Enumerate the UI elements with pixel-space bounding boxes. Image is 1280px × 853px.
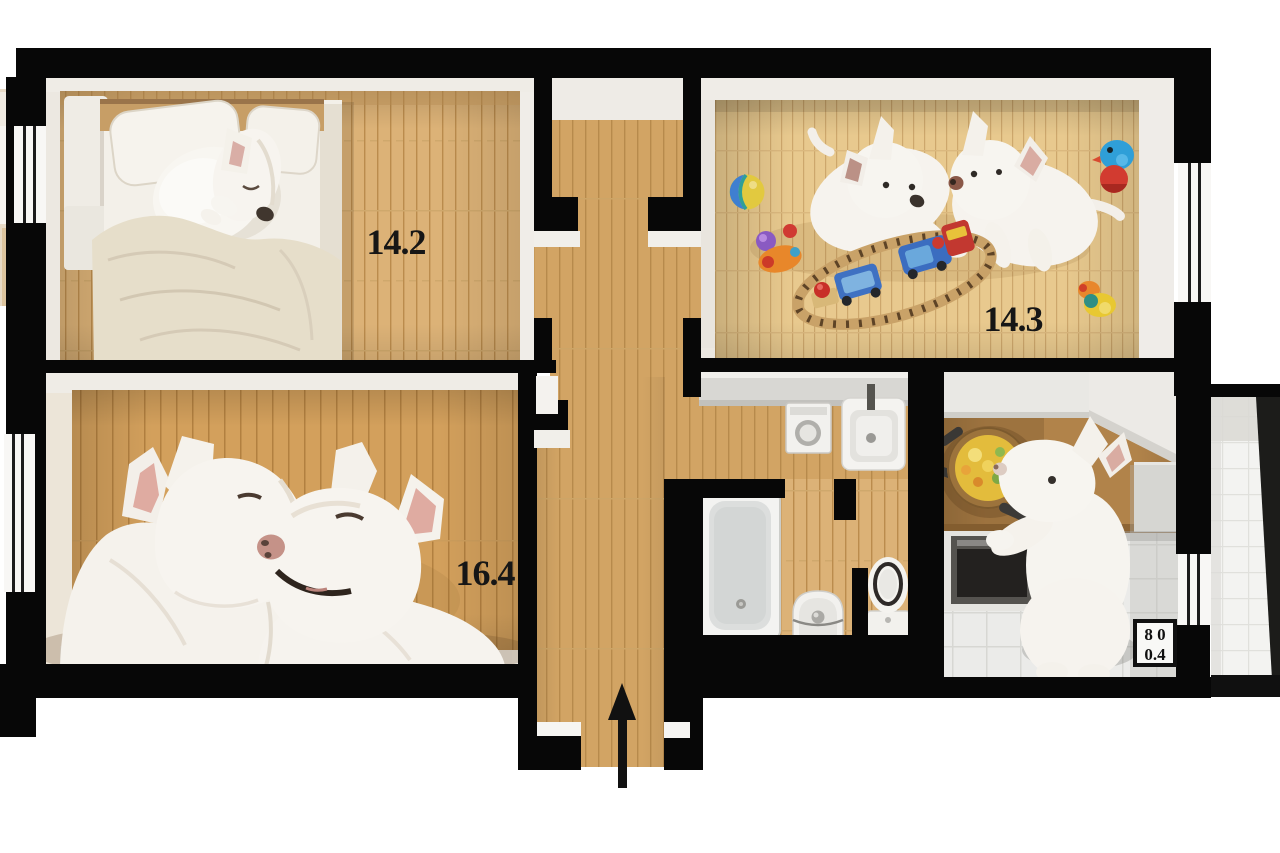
svg-text:16.4: 16.4 [456,553,516,593]
svg-text:14.3: 14.3 [984,299,1043,339]
svg-text:14.2: 14.2 [367,222,426,262]
svg-text:8 0: 8 0 [1144,625,1165,644]
svg-text:0.4: 0.4 [1144,645,1166,664]
